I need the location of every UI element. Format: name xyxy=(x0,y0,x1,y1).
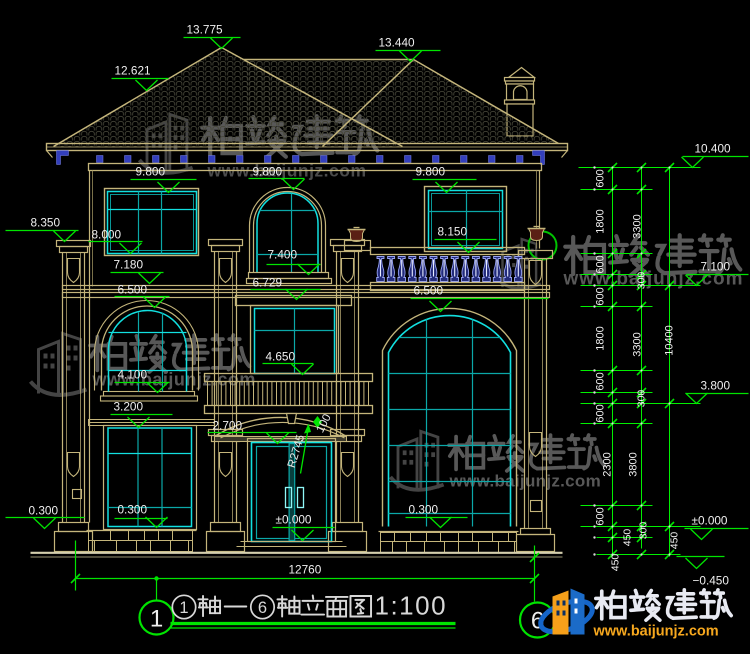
svg-text:9.800: 9.800 xyxy=(136,165,166,179)
svg-text:8.150: 8.150 xyxy=(438,225,468,239)
svg-text:13.440: 13.440 xyxy=(379,36,416,50)
svg-text:600: 600 xyxy=(595,507,607,525)
svg-text:1800: 1800 xyxy=(595,209,607,233)
svg-text:6.500: 6.500 xyxy=(118,283,148,297)
svg-text:7.400: 7.400 xyxy=(268,248,298,262)
svg-text:12.621: 12.621 xyxy=(115,64,151,78)
svg-text:12760: 12760 xyxy=(289,563,322,577)
svg-text:600: 600 xyxy=(595,287,607,305)
svg-text:600: 600 xyxy=(595,404,607,422)
svg-text:600: 600 xyxy=(595,169,607,187)
svg-text:9.800: 9.800 xyxy=(416,165,446,179)
svg-text:300: 300 xyxy=(636,272,648,290)
svg-text:300: 300 xyxy=(636,390,648,408)
svg-text:2300: 2300 xyxy=(602,452,614,476)
svg-text:8.350: 8.350 xyxy=(31,216,61,230)
svg-text:9.800: 9.800 xyxy=(253,165,283,179)
svg-text:450: 450 xyxy=(610,554,622,572)
svg-text:±0.000: ±0.000 xyxy=(276,513,312,527)
svg-text:3300: 3300 xyxy=(632,214,644,238)
svg-text:7.100: 7.100 xyxy=(701,260,731,274)
svg-text:3.200: 3.200 xyxy=(114,400,144,414)
svg-text:1:100: 1:100 xyxy=(375,591,448,621)
svg-text:www.baijunjz.com: www.baijunjz.com xyxy=(593,624,719,640)
svg-text:3800: 3800 xyxy=(628,452,640,476)
svg-text:450: 450 xyxy=(669,532,681,550)
svg-text:7.180: 7.180 xyxy=(114,258,144,272)
svg-text:0.300: 0.300 xyxy=(118,503,148,517)
svg-text:4.650: 4.650 xyxy=(266,350,296,364)
svg-text:1800: 1800 xyxy=(595,326,607,350)
svg-text:3.800: 3.800 xyxy=(701,379,731,393)
svg-text:10.400: 10.400 xyxy=(695,142,732,156)
svg-text:1: 1 xyxy=(150,606,163,633)
svg-text:4.100: 4.100 xyxy=(118,368,148,382)
svg-text:450: 450 xyxy=(622,529,634,547)
svg-text:6: 6 xyxy=(258,599,267,617)
svg-text:−0.450: −0.450 xyxy=(693,574,730,588)
svg-text:1: 1 xyxy=(179,599,188,617)
svg-text:10400: 10400 xyxy=(664,325,676,356)
svg-text:3300: 3300 xyxy=(632,332,644,356)
svg-text:6.500: 6.500 xyxy=(414,284,444,298)
svg-text:0.300: 0.300 xyxy=(409,503,439,517)
svg-text:www.baijunjz.com: www.baijunjz.com xyxy=(92,370,256,390)
svg-text:600: 600 xyxy=(595,255,607,273)
svg-text:300: 300 xyxy=(638,522,650,540)
svg-text:6.729: 6.729 xyxy=(253,276,283,290)
svg-text:600: 600 xyxy=(595,372,607,390)
svg-text:8.000: 8.000 xyxy=(92,228,122,242)
svg-text:0.300: 0.300 xyxy=(29,504,59,518)
svg-text:13.775: 13.775 xyxy=(187,23,224,37)
svg-text:±0.000: ±0.000 xyxy=(692,514,728,528)
svg-text:2.700: 2.700 xyxy=(213,419,243,433)
